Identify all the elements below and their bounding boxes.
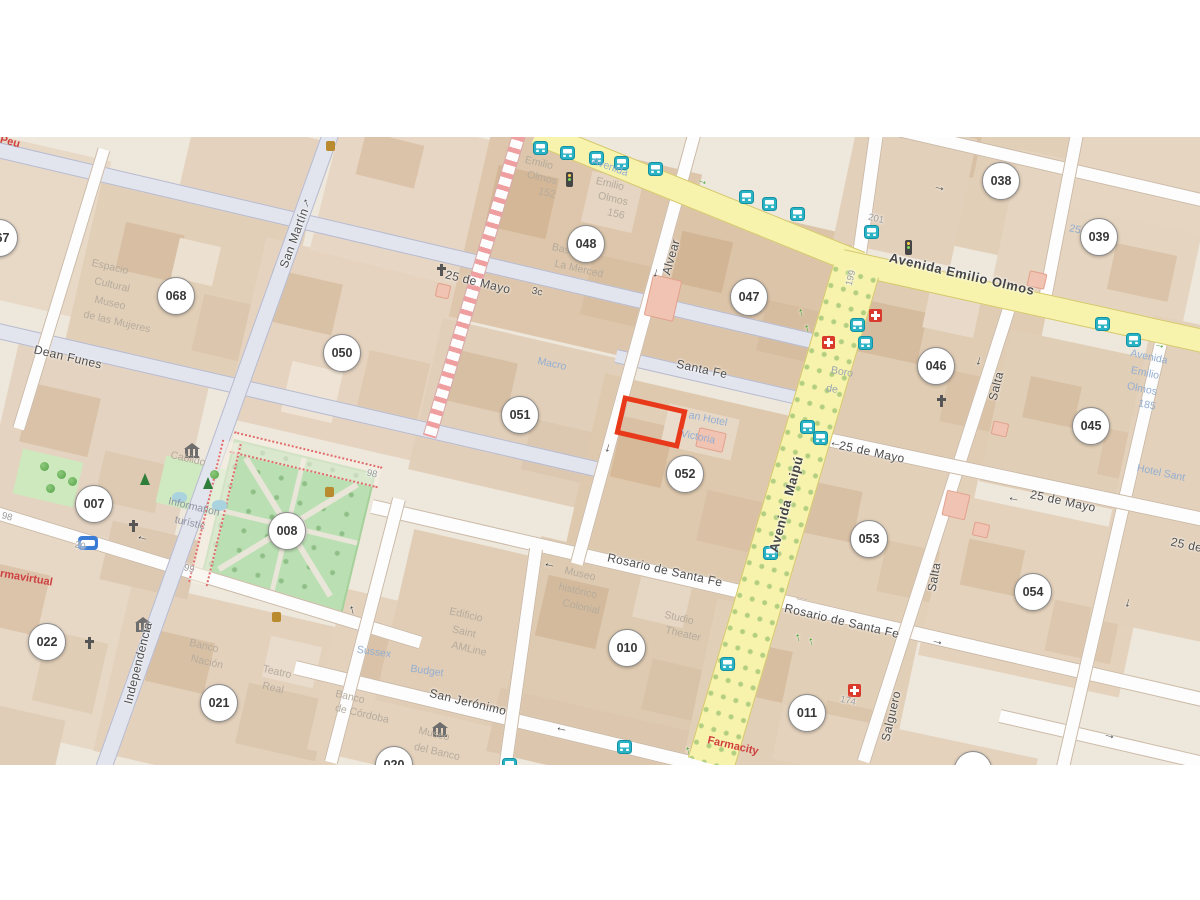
- block-marker-046[interactable]: 046: [917, 347, 955, 385]
- bus-stop-icon: [850, 318, 865, 332]
- museum-icon: [432, 722, 448, 728]
- bus-stop-icon: [1095, 317, 1110, 331]
- church-icon: [940, 395, 943, 407]
- tree-icon: [40, 462, 49, 471]
- block-marker-039[interactable]: 039: [1080, 218, 1118, 256]
- bin-icon: [272, 612, 281, 622]
- block-marker-053[interactable]: 053: [850, 520, 888, 558]
- block-marker-048[interactable]: 048: [567, 225, 605, 263]
- bus-stop-icon: [739, 190, 754, 204]
- tree-icon: [46, 484, 55, 493]
- tree-icon: [68, 477, 77, 486]
- block-marker-007[interactable]: 007: [75, 485, 113, 523]
- light-icon: [905, 240, 912, 255]
- taxi-icon: [78, 536, 98, 550]
- bus-stop-icon: [560, 146, 575, 160]
- block-marker-051[interactable]: 051: [501, 396, 539, 434]
- bus-stop-icon: [762, 197, 777, 211]
- block-marker-008[interactable]: 008: [268, 512, 306, 550]
- bus-stop-icon: [720, 657, 735, 671]
- bus-stop-icon: [763, 546, 778, 560]
- block-marker-052[interactable]: 052: [666, 455, 704, 493]
- church-icon: [440, 264, 443, 276]
- block-marker-022[interactable]: 022: [28, 623, 66, 661]
- bus-stop-icon: [1126, 333, 1141, 347]
- bin-icon: [326, 141, 335, 151]
- block-marker-054[interactable]: 054: [1014, 573, 1052, 611]
- bus-stop-icon: [533, 141, 548, 155]
- block-marker-021[interactable]: 021: [200, 684, 238, 722]
- pond-icon: [172, 492, 187, 503]
- bus-stop-icon: [589, 151, 604, 165]
- pond-icon: [212, 500, 227, 511]
- block-marker-010[interactable]: 010: [608, 629, 646, 667]
- block-marker-011[interactable]: 011: [788, 694, 826, 732]
- bus-stop-icon: [858, 336, 873, 350]
- block-marker-068[interactable]: 068: [157, 277, 195, 315]
- pine-icon: [140, 473, 150, 485]
- bin-icon: [325, 487, 334, 497]
- redcross-icon: [869, 309, 882, 322]
- bus-stop-icon: [648, 162, 663, 176]
- block-marker-045[interactable]: 045: [1072, 407, 1110, 445]
- redcross-icon: [848, 684, 861, 697]
- bus-stop-icon: [614, 156, 629, 170]
- museum-icon: [184, 443, 200, 449]
- bus-stop-icon: [813, 431, 828, 445]
- block-marker-038[interactable]: 038: [982, 162, 1020, 200]
- top-white-margin: [0, 0, 1200, 137]
- screenshot-stage: San MartínDean Funes25 de Mayo3cSanta Fe…: [0, 0, 1200, 900]
- bus-stop-icon: [617, 740, 632, 754]
- church-icon: [132, 520, 135, 532]
- bus-stop-icon: [864, 225, 879, 239]
- light-icon: [566, 172, 573, 187]
- oneway-arrow: ←: [1006, 488, 1022, 505]
- block-marker-047[interactable]: 047: [730, 278, 768, 316]
- pine-icon: [203, 477, 213, 489]
- church-icon: [88, 637, 91, 649]
- tree-icon: [57, 470, 66, 479]
- museum-icon: [135, 617, 151, 623]
- bottom-white-margin: [0, 765, 1200, 900]
- bus-stop-icon: [790, 207, 805, 221]
- block-marker-050[interactable]: 050: [323, 334, 361, 372]
- redcross-icon: [822, 336, 835, 349]
